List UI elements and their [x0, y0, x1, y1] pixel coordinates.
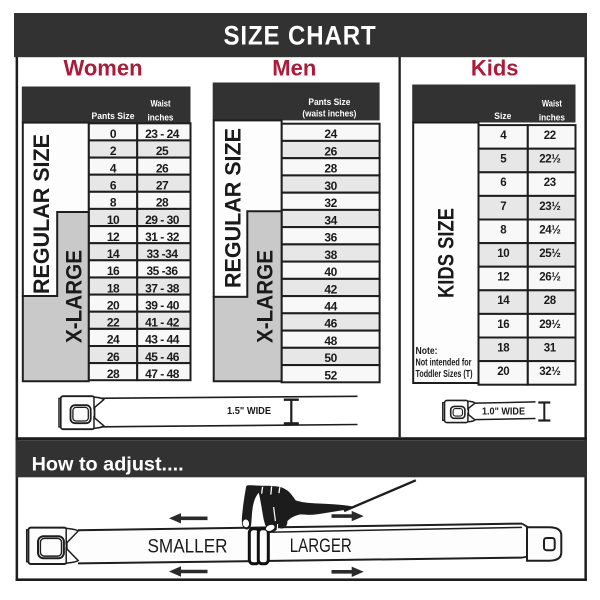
svg-text:Toddler Sizes (T): Toddler Sizes (T) [416, 368, 473, 380]
svg-text:6: 6 [110, 179, 117, 193]
svg-text:How to adjust....: How to adjust.... [32, 454, 184, 476]
svg-text:20: 20 [497, 366, 509, 378]
svg-text:inches: inches [539, 112, 565, 123]
svg-text:42: 42 [324, 282, 337, 296]
svg-text:0: 0 [110, 127, 117, 141]
svg-text:28: 28 [544, 295, 557, 307]
svg-text:38: 38 [324, 248, 337, 262]
svg-text:Pants Size: Pants Size [308, 96, 350, 107]
svg-text:6: 6 [500, 177, 506, 189]
svg-text:18: 18 [497, 342, 510, 354]
svg-text:24½: 24½ [539, 224, 561, 236]
svg-text:Women: Women [63, 56, 142, 81]
svg-text:33 -34: 33 -34 [146, 247, 178, 261]
svg-text:29 - 30: 29 - 30 [145, 213, 180, 227]
svg-text:31: 31 [544, 342, 557, 354]
svg-text:22: 22 [544, 130, 556, 142]
svg-text:SIZE CHART: SIZE CHART [224, 21, 377, 51]
svg-text:12: 12 [107, 230, 120, 244]
svg-text:8: 8 [110, 196, 117, 210]
svg-text:7: 7 [500, 201, 506, 213]
svg-text:1.0" WIDE: 1.0" WIDE [482, 406, 525, 417]
svg-text:24: 24 [107, 333, 120, 347]
svg-text:46: 46 [324, 317, 337, 331]
svg-text:8: 8 [500, 224, 507, 236]
svg-text:X-LARGE: X-LARGE [62, 250, 87, 343]
svg-text:29½: 29½ [539, 319, 561, 331]
svg-text:26: 26 [324, 144, 337, 158]
svg-text:52: 52 [324, 369, 337, 383]
svg-text:31 - 32: 31 - 32 [145, 230, 180, 244]
svg-text:16: 16 [107, 264, 120, 278]
svg-text:X-LARGE: X-LARGE [252, 250, 277, 343]
svg-text:10: 10 [497, 248, 509, 260]
svg-text:25½: 25½ [539, 248, 561, 260]
svg-text:28: 28 [156, 196, 169, 210]
svg-text:Size: Size [494, 110, 511, 121]
svg-text:48: 48 [324, 334, 337, 348]
svg-text:24: 24 [324, 127, 337, 141]
svg-text:2: 2 [110, 144, 117, 158]
svg-text:Men: Men [272, 56, 316, 81]
svg-text:47 - 48: 47 - 48 [145, 367, 180, 381]
svg-text:41 - 42: 41 - 42 [145, 316, 180, 330]
svg-text:1.5" WIDE: 1.5" WIDE [227, 406, 271, 417]
svg-text:35 -36: 35 -36 [146, 264, 178, 278]
svg-text:44: 44 [324, 300, 337, 314]
svg-text:39 - 40: 39 - 40 [145, 298, 180, 312]
svg-text:26½: 26½ [539, 272, 561, 284]
svg-text:4: 4 [110, 161, 117, 175]
svg-text:27: 27 [156, 179, 169, 193]
svg-text:50: 50 [324, 351, 337, 365]
svg-text:22: 22 [107, 316, 120, 330]
svg-text:18: 18 [107, 281, 120, 295]
svg-text:45 - 46: 45 - 46 [145, 350, 180, 364]
svg-text:10: 10 [107, 213, 120, 227]
svg-text:25: 25 [156, 144, 169, 158]
svg-text:23 - 24: 23 - 24 [145, 127, 180, 141]
svg-text:22½: 22½ [539, 154, 561, 166]
svg-text:43 - 44: 43 - 44 [145, 333, 180, 347]
svg-text:Waist: Waist [542, 98, 562, 109]
svg-text:Waist: Waist [151, 98, 171, 109]
svg-text:26: 26 [156, 161, 169, 175]
svg-text:14: 14 [107, 247, 120, 261]
svg-text:28: 28 [107, 367, 120, 381]
svg-text:30: 30 [324, 179, 337, 193]
svg-text:26: 26 [107, 350, 120, 364]
svg-text:14: 14 [497, 295, 510, 307]
svg-text:12: 12 [497, 272, 509, 284]
svg-text:Note:: Note: [416, 345, 438, 357]
svg-text:40: 40 [324, 265, 337, 279]
svg-text:5: 5 [500, 154, 507, 166]
svg-text:REGULAR SIZE: REGULAR SIZE [220, 128, 245, 288]
svg-text:LARGER: LARGER [290, 536, 352, 557]
svg-text:32: 32 [324, 196, 337, 210]
svg-text:32½: 32½ [539, 366, 561, 378]
svg-text:inches: inches [148, 112, 174, 123]
svg-text:37 - 38: 37 - 38 [145, 281, 180, 295]
svg-text:23: 23 [544, 177, 556, 189]
svg-text:Pants Size: Pants Size [92, 110, 135, 121]
svg-text:(waist inches): (waist inches) [302, 107, 356, 118]
svg-text:34: 34 [324, 213, 337, 227]
svg-text:4: 4 [500, 130, 507, 142]
svg-text:16: 16 [497, 319, 509, 331]
svg-text:Kids: Kids [471, 56, 519, 81]
svg-text:23½: 23½ [539, 201, 561, 213]
svg-text:36: 36 [324, 231, 337, 245]
svg-text:SMALLER: SMALLER [148, 537, 228, 558]
svg-text:REGULAR SIZE: REGULAR SIZE [29, 134, 54, 294]
svg-text:KIDS SIZE: KIDS SIZE [433, 208, 458, 298]
svg-text:28: 28 [324, 162, 337, 176]
svg-text:20: 20 [107, 298, 120, 312]
